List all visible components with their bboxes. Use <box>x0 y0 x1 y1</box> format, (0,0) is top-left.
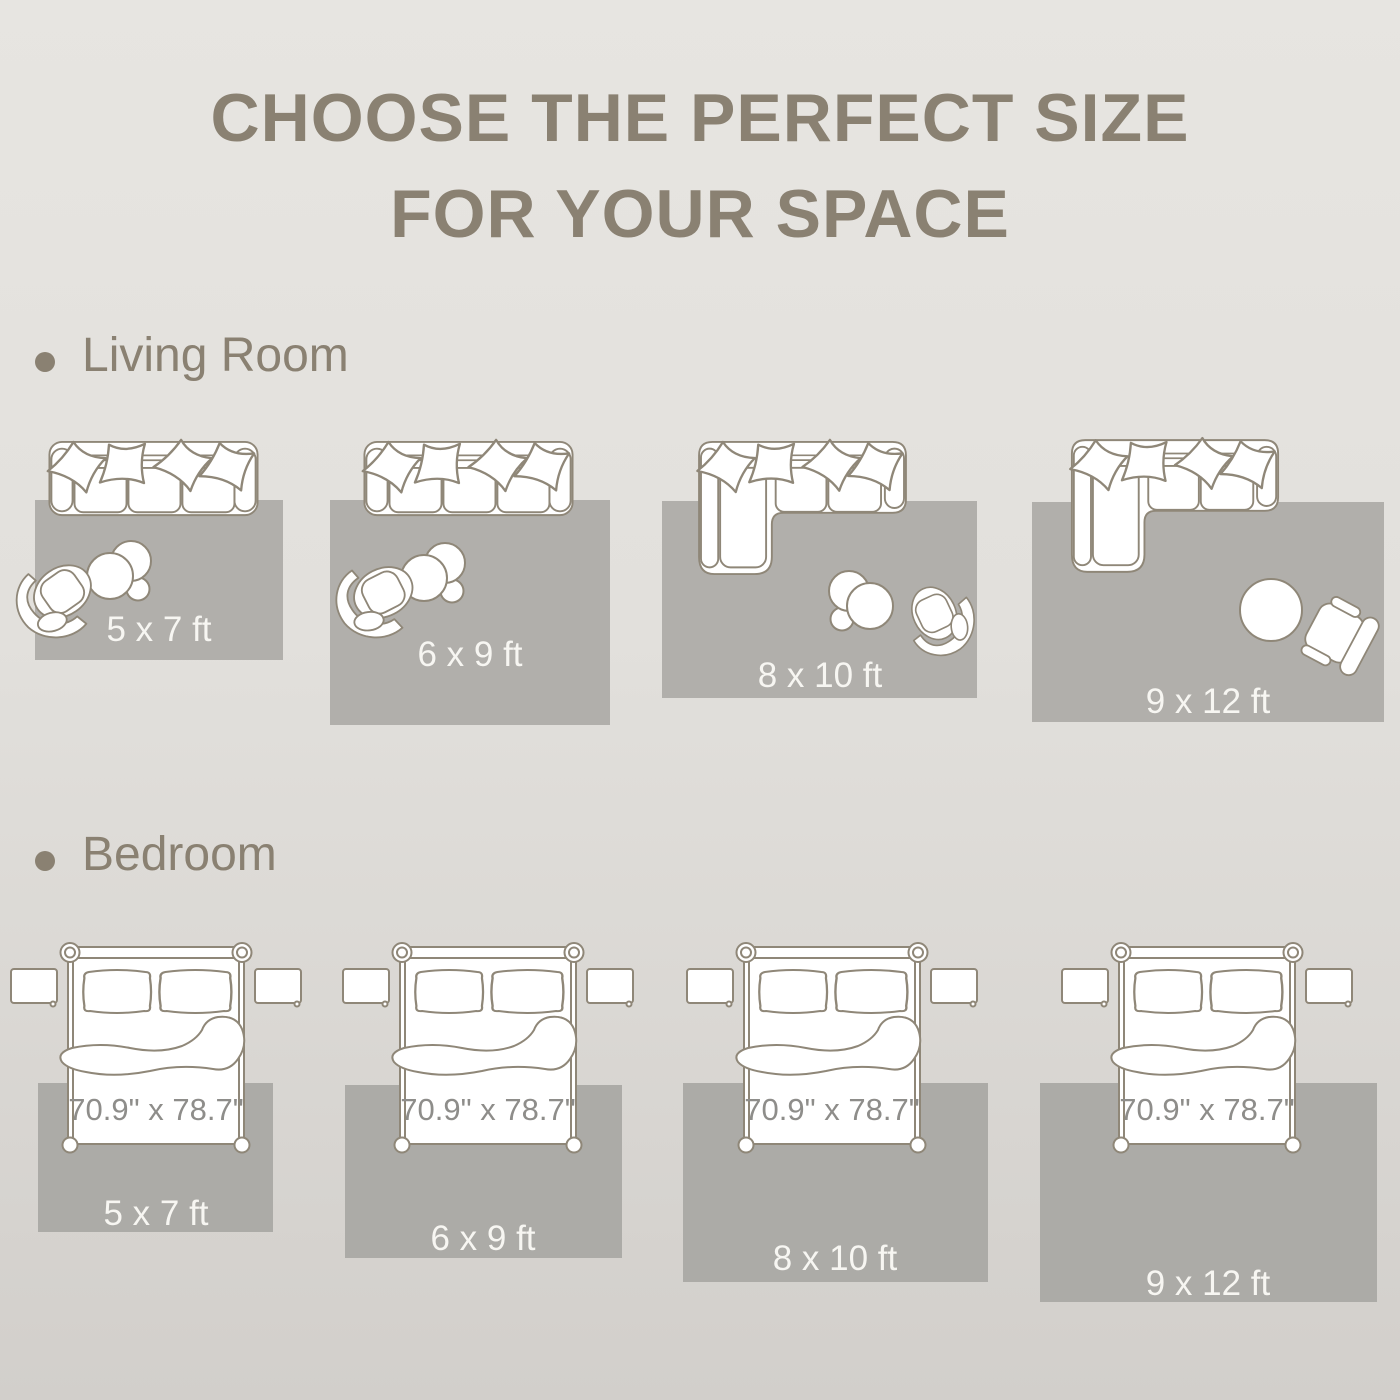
sofa-icon <box>47 440 260 519</box>
page-title-line1: CHOOSE THE PERFECT SIZE <box>211 80 1190 156</box>
section-label-bedroom: Bedroom <box>82 829 277 881</box>
page-title-line2: FOR YOUR SPACE <box>390 176 1010 252</box>
rug-size-infographic: CHOOSE THE PERFECT SIZEFOR YOUR SPACE Li… <box>0 0 1400 1400</box>
bed-dimension-label: 70.9" x 78.7" <box>1119 1092 1294 1128</box>
armchair-icon <box>892 573 987 668</box>
bed-dimension-label: 70.9" x 78.7" <box>744 1092 919 1128</box>
rug-size-label: 9 x 12 ft <box>1146 1266 1271 1302</box>
coffee-table-icon <box>826 570 894 632</box>
bullet-icon <box>35 851 55 871</box>
rug-size-label: 8 x 10 ft <box>773 1241 898 1277</box>
round-table-icon <box>1238 577 1304 643</box>
sectional-sofa-icon <box>1070 438 1280 574</box>
page-title: CHOOSE THE PERFECT SIZEFOR YOUR SPACE <box>0 70 1400 262</box>
armchair-icon <box>324 546 428 650</box>
rug-size-label: 6 x 9 ft <box>430 1221 535 1257</box>
rug-size-label: 8 x 10 ft <box>758 658 883 694</box>
rug-size-label: 6 x 9 ft <box>417 637 522 673</box>
bullet-icon <box>35 352 55 372</box>
rug-size-label: 9 x 12 ft <box>1146 684 1271 720</box>
rug-size-label: 5 x 7 ft <box>106 612 211 648</box>
section-label-living-room: Living Room <box>82 330 349 382</box>
sofa-icon <box>362 440 575 519</box>
rug-size-label: 5 x 7 ft <box>103 1196 208 1232</box>
bed-dimension-label: 70.9" x 78.7" <box>400 1092 575 1128</box>
sectional-sofa-icon <box>697 440 908 576</box>
armchair-icon <box>10 552 102 644</box>
bed-dimension-label: 70.9" x 78.7" <box>68 1092 243 1128</box>
